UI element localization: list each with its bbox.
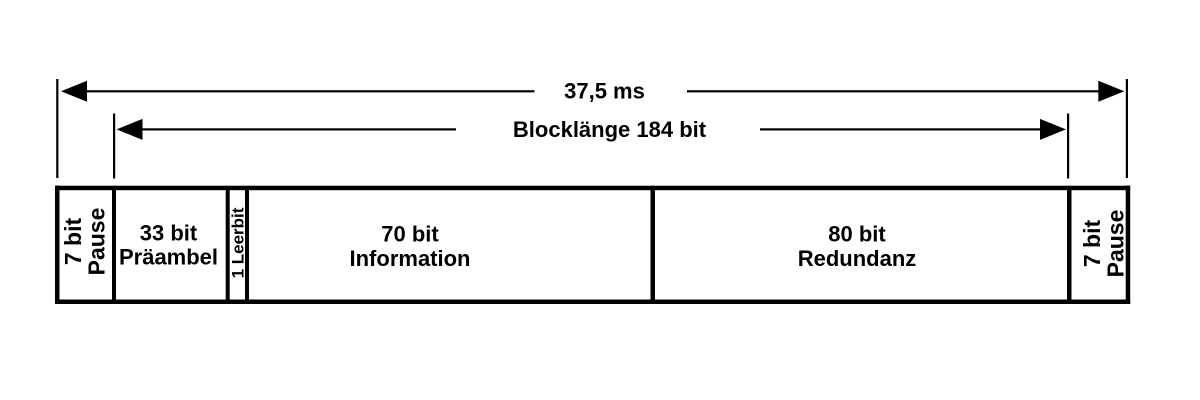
svg-text:33 bitPräambel: 33 bitPräambel bbox=[119, 221, 218, 270]
svg-text:7 bitPause: 7 bitPause bbox=[60, 208, 110, 276]
svg-text:70 bitInformation: 70 bitInformation bbox=[350, 221, 471, 271]
svg-text:37,5 ms: 37,5 ms bbox=[564, 79, 645, 104]
svg-text:7 bitPause: 7 bitPause bbox=[1079, 210, 1129, 278]
svg-text:1 Leerbit: 1 Leerbit bbox=[229, 207, 248, 278]
svg-text:Blocklänge 184 bit: Blocklänge 184 bit bbox=[513, 117, 707, 142]
svg-text:80 bitRedundanz: 80 bitRedundanz bbox=[798, 221, 917, 271]
